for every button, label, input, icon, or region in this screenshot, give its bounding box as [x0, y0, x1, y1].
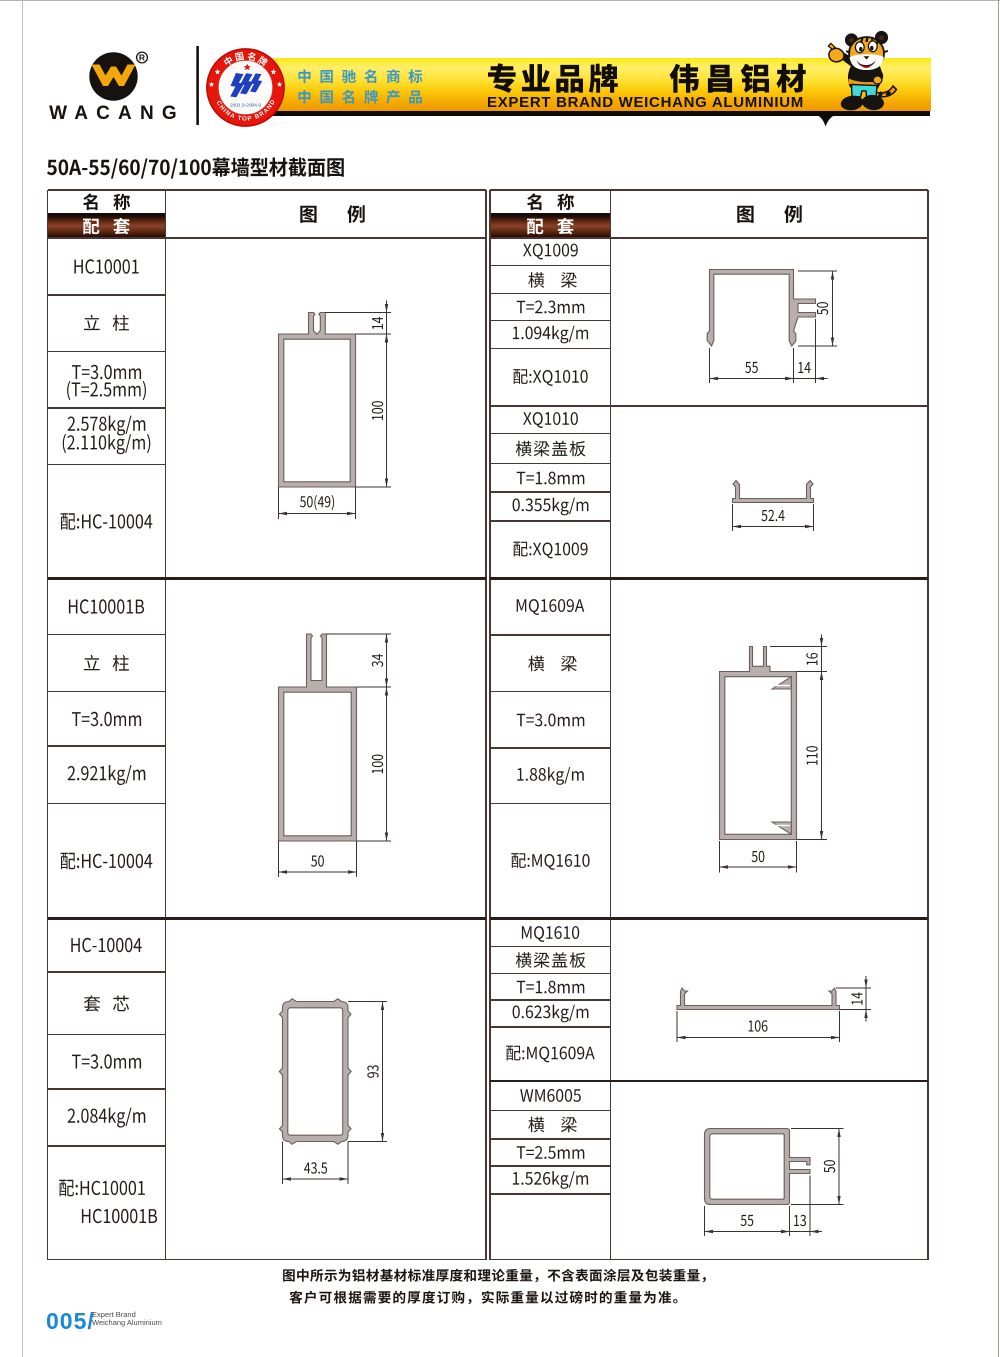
svg-text:2001.9-2004.9: 2001.9-2004.9 — [230, 103, 261, 109]
svg-text:R: R — [139, 53, 145, 63]
